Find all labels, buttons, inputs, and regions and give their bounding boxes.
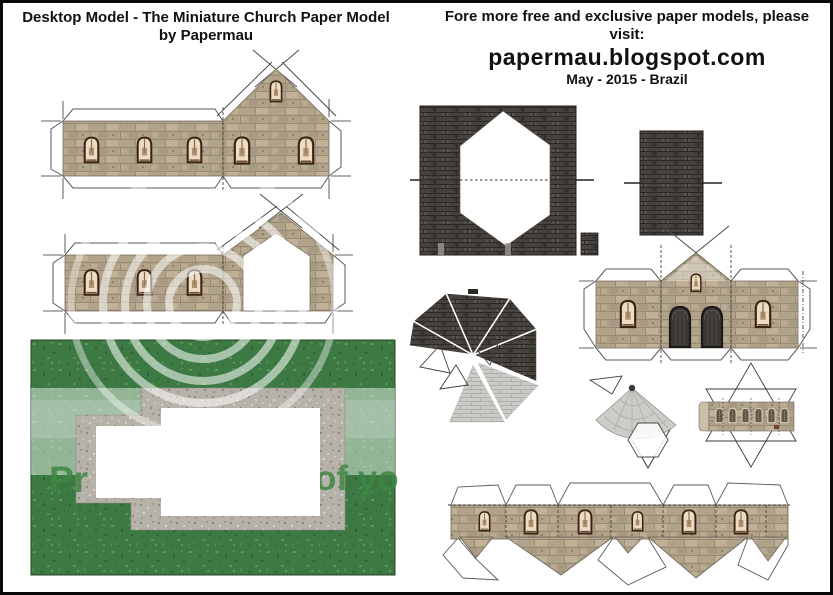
page-title: Desktop Model - The Miniature Church Pap…: [11, 9, 401, 27]
piece-steeple-wall-strip: [438, 475, 793, 595]
piece-nave-wall-with-gable: [39, 59, 355, 209]
papercraft-sheet: Desktop Model - The Miniature Church Pap…: [0, 0, 833, 595]
blog-url: papermau.blogspot.com: [427, 44, 827, 70]
page-author: by Papermau: [11, 27, 401, 45]
promo-block: Fore more free and exclusive paper model…: [427, 8, 827, 88]
piece-tower-roof-fan: [406, 281, 551, 431]
piece-tower-wall-strip: [698, 361, 808, 473]
small-shingle-scrap: [581, 233, 598, 255]
watermark-text-left: Pr: [49, 459, 88, 500]
piece-porch-roof: [638, 129, 718, 241]
piece-nave-wall-with-arch-cutout: [39, 206, 355, 346]
piece-small-cone-roof: [588, 368, 698, 476]
title-block: Desktop Model - The Miniature Church Pap…: [11, 9, 401, 45]
promo-text: Fore more free and exclusive paper model…: [427, 8, 827, 44]
piece-front-facade-with-doors: [579, 231, 819, 371]
piece-main-roof-with-tower-hole: [418, 103, 586, 259]
watermark-text-right: of yo: [315, 459, 399, 498]
piece-grass-base: Pr of yo: [31, 340, 395, 575]
date-country: May - 2015 - Brazil: [427, 70, 827, 88]
